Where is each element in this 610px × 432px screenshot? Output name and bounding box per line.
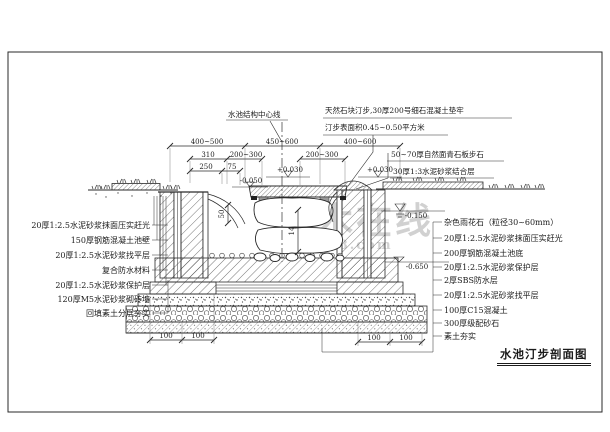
left-label-3: 复合防水材料 [102,265,150,276]
centerline-note: 水池结构中心线 [228,109,281,120]
ground-right [376,177,545,189]
dim-mid-200-300-right: 200~300 [306,151,339,159]
pool-floor-layers [126,253,427,333]
elev-step-top-right: +0.030 [367,166,393,174]
drawing-title: 水池汀步剖面图 [497,346,591,366]
dim-low-250: 250 [199,163,212,171]
elev-step-top: +0.030 [277,166,303,174]
dim-vert-50: 50 [218,210,226,219]
dim-top-left: 400~500 [191,138,224,146]
dim-bottom-right-2: 100 [399,334,412,342]
right-label-7: 300厚级配砂石 [444,318,499,329]
dim-low-75: 75 [228,163,237,171]
right-label-0: 杂色雨花石（粒径30~60mm） [444,217,558,228]
left-label-1: 150厚钢筋混凝土池壁 [71,235,150,246]
stepping-stone-note-line1: 天然石块汀步,30厚200号细石混凝土垫牢 [325,105,464,116]
left-label-2: 20厚1:2.5水泥砂浆找平层 [55,250,150,261]
right-label-6: 100厚C15混凝土 [444,305,508,316]
slab-note-line1: 50~70厚自然面青石板步石 [391,149,484,160]
dim-mid-310: 310 [201,151,214,159]
left-label-4: 20厚1:2.5水泥砂浆保护层 [55,280,150,291]
left-label-0: 20厚1:2.5水泥砂浆抹面压实赶光 [31,220,150,231]
right-label-8: 素土夯实 [444,331,476,342]
dim-bottom-left-2: 100 [191,332,204,340]
dim-bottom-left-1: 100 [159,332,172,340]
elev-pool-edge: -0.050 [240,177,262,185]
stepping-stone-note-line2: 汀步表面积0.45~0.50平方米 [325,122,425,133]
dim-bottom-right-1: 100 [367,334,380,342]
right-label-1: 20厚1:2.5水泥砂浆抹面压实赶光 [444,233,563,244]
right-label-4: 2厚SBS防水层 [444,275,498,286]
stepping-stones [208,186,347,262]
right-label-3: 20厚1:2.5水泥砂浆保护层 [444,262,539,273]
right-label-2: 200厚钢筋混凝土池底 [444,248,523,259]
elev-pool-bottom: -0.650 [406,263,428,271]
cad-sheet: 土木在线 co188.com [0,0,610,432]
left-label-5: 120厚M5水泥砂浆砌砖墙 [57,294,150,305]
left-label-6: 回填素土分层夯实 [86,308,150,319]
dim-mid-200-300-left: 200~300 [230,151,263,159]
slab-note-line2: 30厚1:3水泥砂浆结合层 [393,166,475,177]
dim-vert-14: 14 [288,227,296,236]
section-drawing [0,0,610,432]
dim-top-mid: 450~600 [266,138,299,146]
right-label-5: 20厚1:2.5水泥砂浆找平层 [444,290,539,301]
dim-top-right: 400~600 [344,138,377,146]
elev-water-level: -0.150 [405,212,427,220]
